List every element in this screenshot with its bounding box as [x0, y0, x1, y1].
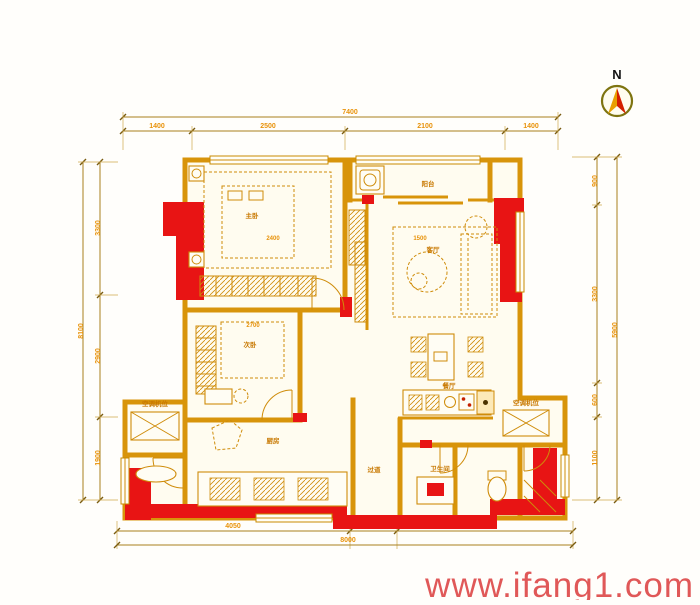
nightstand-lamp — [189, 166, 204, 181]
dim-left-seg1: 3300 — [95, 220, 102, 236]
wardrobe — [200, 276, 316, 296]
label-balcony: 阳台 — [422, 179, 436, 188]
chair — [468, 337, 483, 352]
inline-dim-living: 1500 — [413, 236, 427, 242]
dim-left-seg2: 2900 — [95, 348, 102, 364]
ac-left-label: 空调机位 — [142, 399, 169, 408]
label-hallway: 过道 — [368, 465, 382, 474]
window — [256, 514, 332, 522]
dim-top-seg4: 1400 — [523, 123, 539, 130]
window — [516, 212, 524, 292]
dining-table — [428, 334, 454, 380]
shear-wall — [420, 440, 432, 448]
tv-cabinet — [355, 242, 367, 322]
compass-north-label: N — [612, 67, 621, 82]
floorplan-canvas: 7400 1400 2500 2100 1400 8100 3300 2900 … — [0, 0, 700, 600]
dim-left-seg3: 1900 — [95, 450, 102, 466]
fridge — [477, 391, 494, 414]
watermark-text: www.ifang1.com — [424, 566, 694, 600]
window — [356, 156, 480, 164]
dim-top-seg2: 2500 — [260, 123, 276, 130]
wardrobe — [196, 326, 216, 394]
dim-right-seg2: 3300 — [592, 286, 599, 302]
label-living-room: 客厅 — [426, 245, 441, 254]
porch-basin — [136, 466, 176, 482]
dim-top-seg3: 2100 — [417, 123, 433, 130]
shear-wall — [340, 297, 352, 317]
dim-bottom-seg1: 4050 — [225, 523, 241, 530]
label-master-bedroom: 主卧 — [246, 211, 260, 220]
dim-right-seg3: 600 — [592, 394, 599, 406]
balcony-furniture — [356, 166, 384, 194]
chair — [411, 362, 426, 377]
shear-wall — [490, 499, 565, 515]
ac-right-label: 空调机位 — [513, 398, 540, 407]
window — [561, 455, 569, 497]
dim-right-overall: 5900 — [612, 322, 619, 338]
dimension-chain-right: 900 3300 600 1100 5900 — [572, 154, 622, 503]
window — [121, 458, 129, 504]
washing-machine — [356, 166, 384, 194]
chair — [411, 337, 426, 352]
dim-right-seg4: 1100 — [592, 450, 599, 465]
nightstand-lamp — [189, 252, 204, 267]
dimension-chain-top: 7400 1400 2500 2100 1400 — [120, 109, 561, 150]
shear-wall — [163, 202, 177, 236]
label-bathroom: 卫生间 — [430, 464, 450, 473]
label-kitchen: 厨房 — [267, 436, 281, 445]
label-second-bedroom: 次卧 — [244, 340, 258, 349]
shear-wall — [362, 195, 374, 204]
entry-porch — [136, 466, 176, 482]
dim-left-overall: 8100 — [78, 323, 85, 339]
dim-right-seg1: 900 — [592, 175, 599, 187]
shear-wall — [333, 515, 497, 529]
dim-top-seg1: 1400 — [149, 123, 165, 130]
kitchen-appliance-row — [403, 390, 494, 415]
north-compass: N — [602, 67, 632, 116]
desk — [205, 389, 232, 404]
dim-bottom-overall: 8000 — [340, 537, 356, 544]
washer-unit — [417, 477, 454, 504]
shear-wall — [293, 413, 307, 422]
inline-dim-master-bed: 2400 — [266, 236, 280, 242]
chair — [468, 362, 483, 377]
floorplan-page: 7400 1400 2500 2100 1400 8100 3300 2900 … — [0, 0, 700, 600]
label-dining: 餐厅 — [442, 381, 457, 390]
dimension-chain-left: 8100 3300 2900 1900 — [78, 159, 118, 503]
inline-dim-second-bed: 2700 — [246, 323, 260, 329]
window — [210, 156, 328, 164]
dim-top-overall: 7400 — [342, 109, 358, 116]
